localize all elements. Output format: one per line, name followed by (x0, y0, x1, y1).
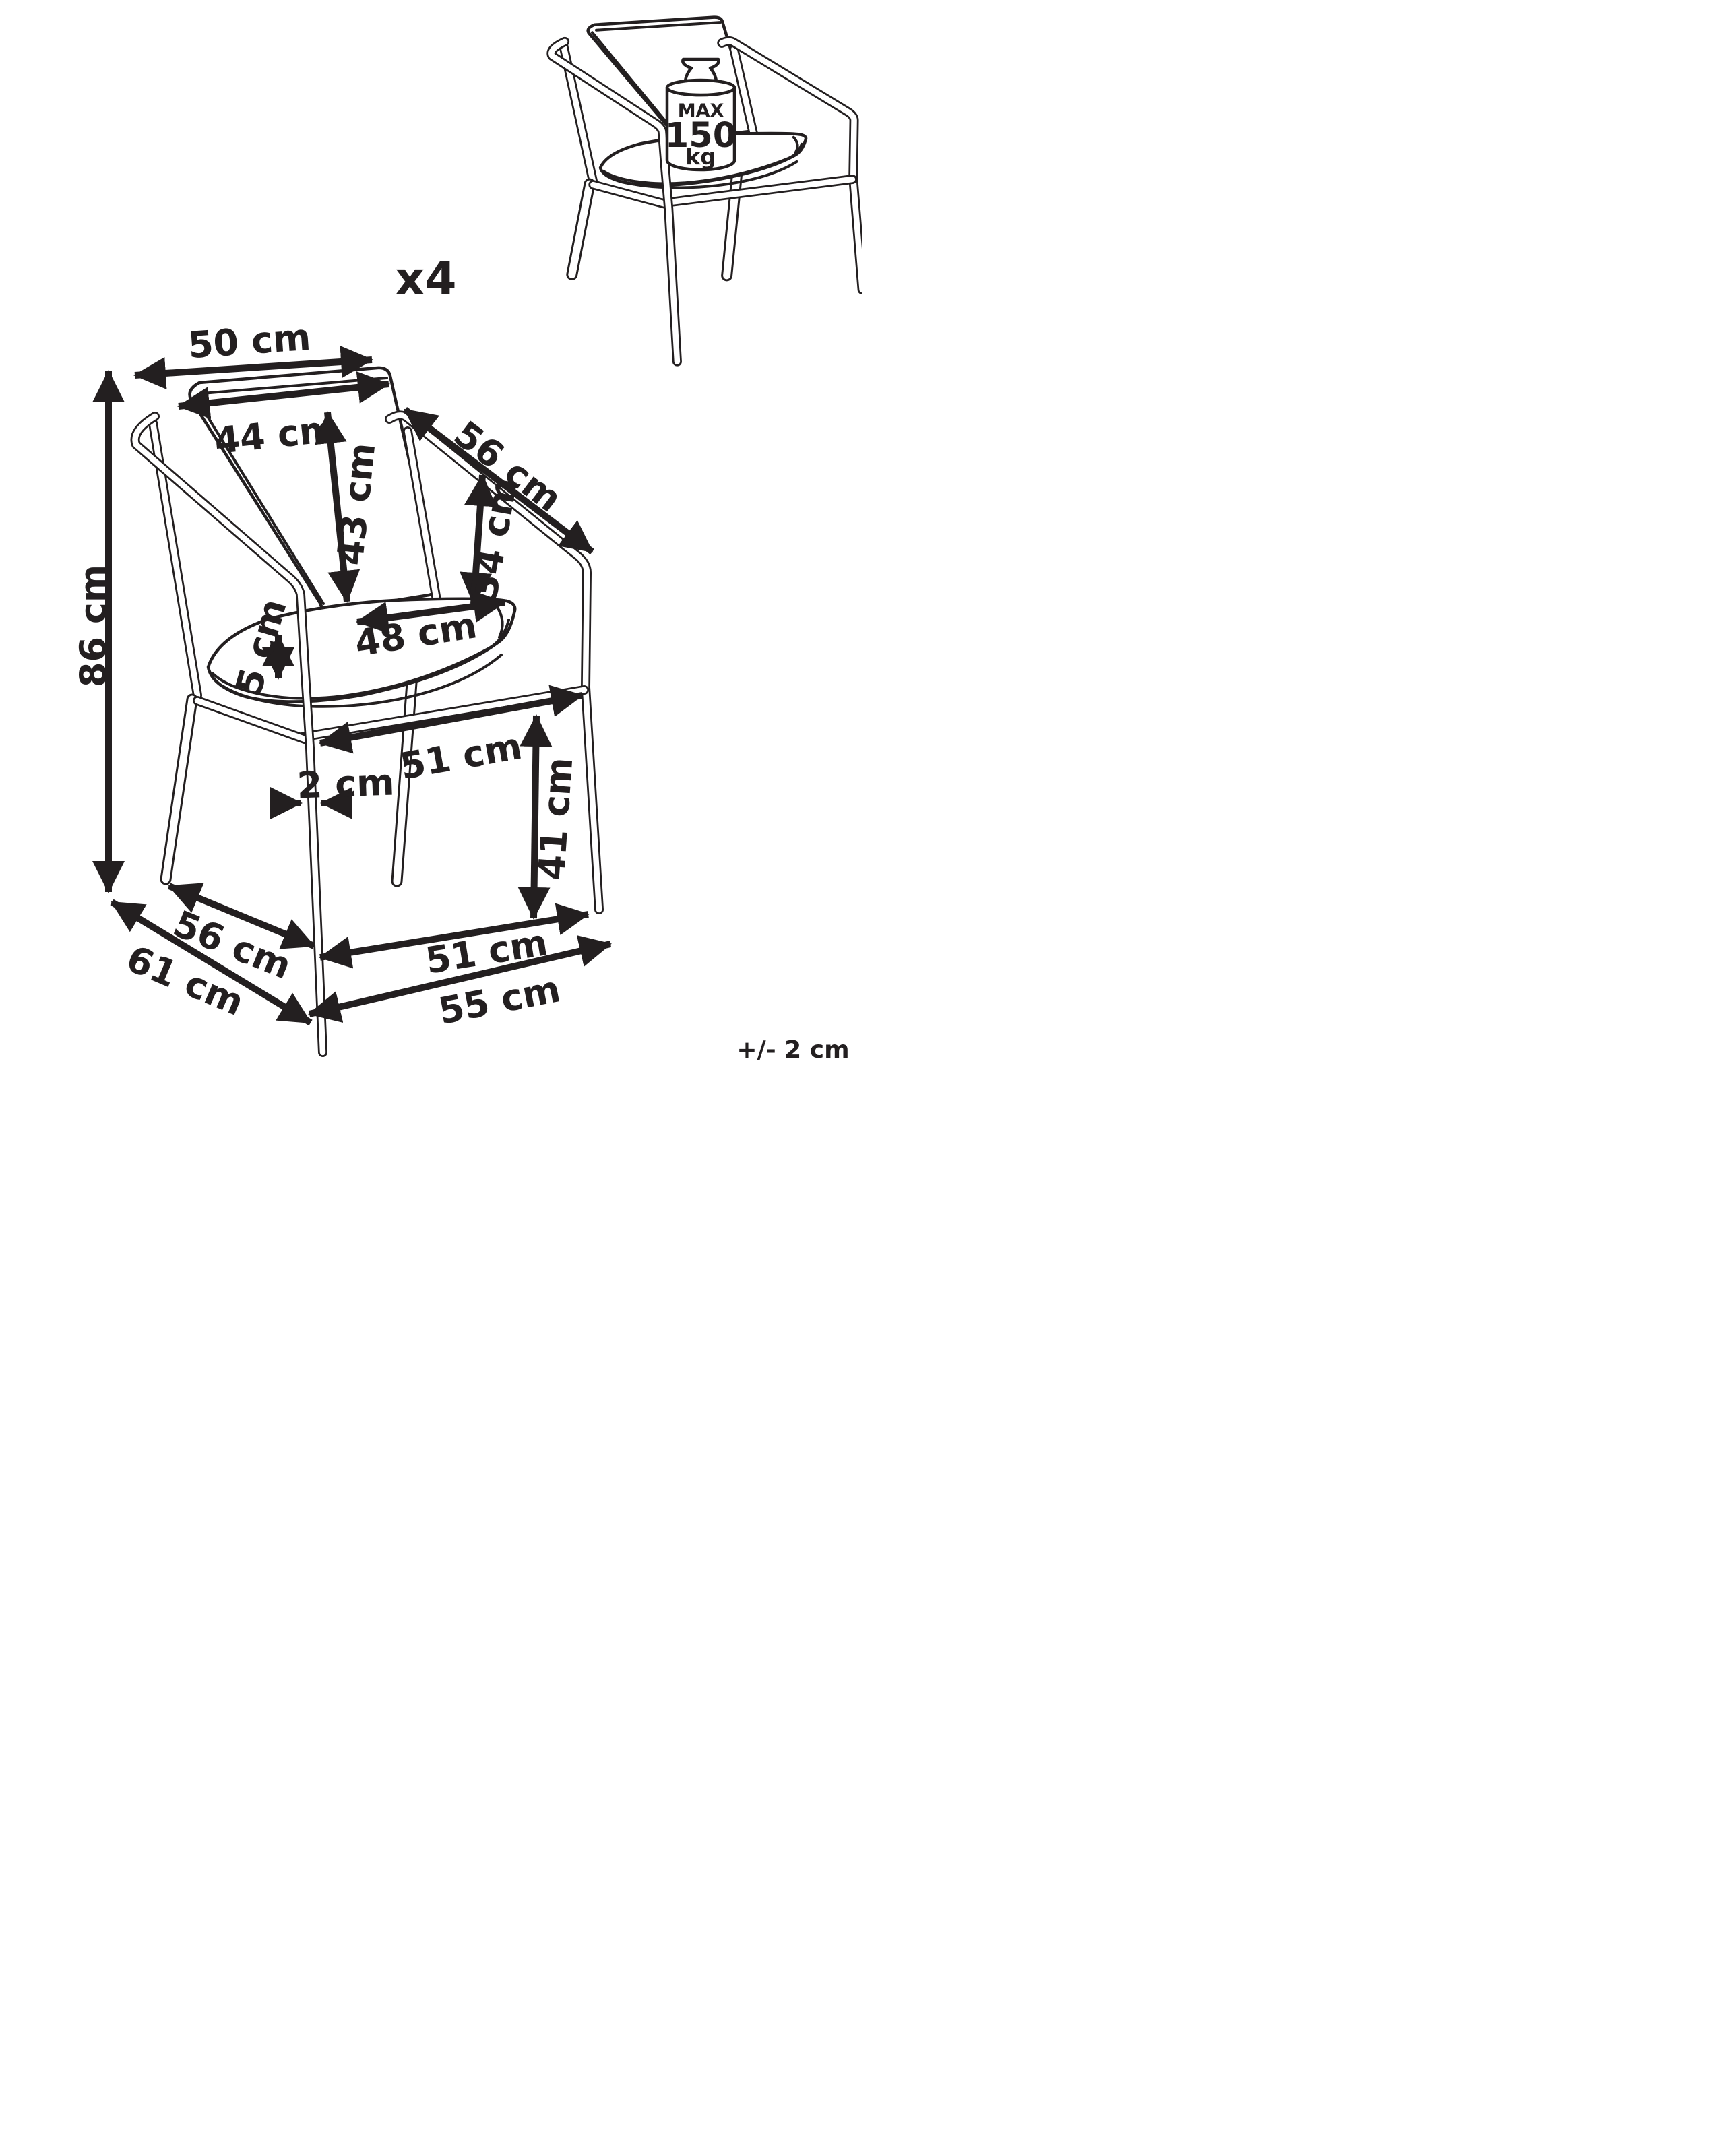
max-load-label-3: kg (685, 144, 716, 170)
tolerance-note: +/- 2 cm (736, 1036, 849, 1064)
dim-back-frame-width: 50 cm (135, 316, 372, 375)
dim-total-height: 86 cm (72, 371, 115, 892)
quantity-label: x4 (395, 253, 456, 306)
dim-leg-thickness-label: 2 cm (296, 761, 396, 806)
dim-leg-thickness: 2 cm (282, 761, 395, 806)
dim-back-frame-width-label: 50 cm (187, 316, 312, 367)
dim-total-height-label: 86 cm (72, 565, 115, 687)
dim-seat-frame-width-label: 51 cm (397, 725, 525, 788)
dim-seat-height-label: 41 cm (530, 756, 582, 881)
dimension-diagram: MAX 150 kg x4 50 cm 44 cm 43 cm 56 cm 34… (0, 0, 862, 1078)
dim-backrest-height-above-seat-label: 34 cm (463, 474, 526, 602)
weight-top (667, 80, 734, 95)
dim-seat-height: 41 cm (530, 716, 582, 918)
dim-backrest-height-above-seat: 34 cm (463, 474, 526, 604)
